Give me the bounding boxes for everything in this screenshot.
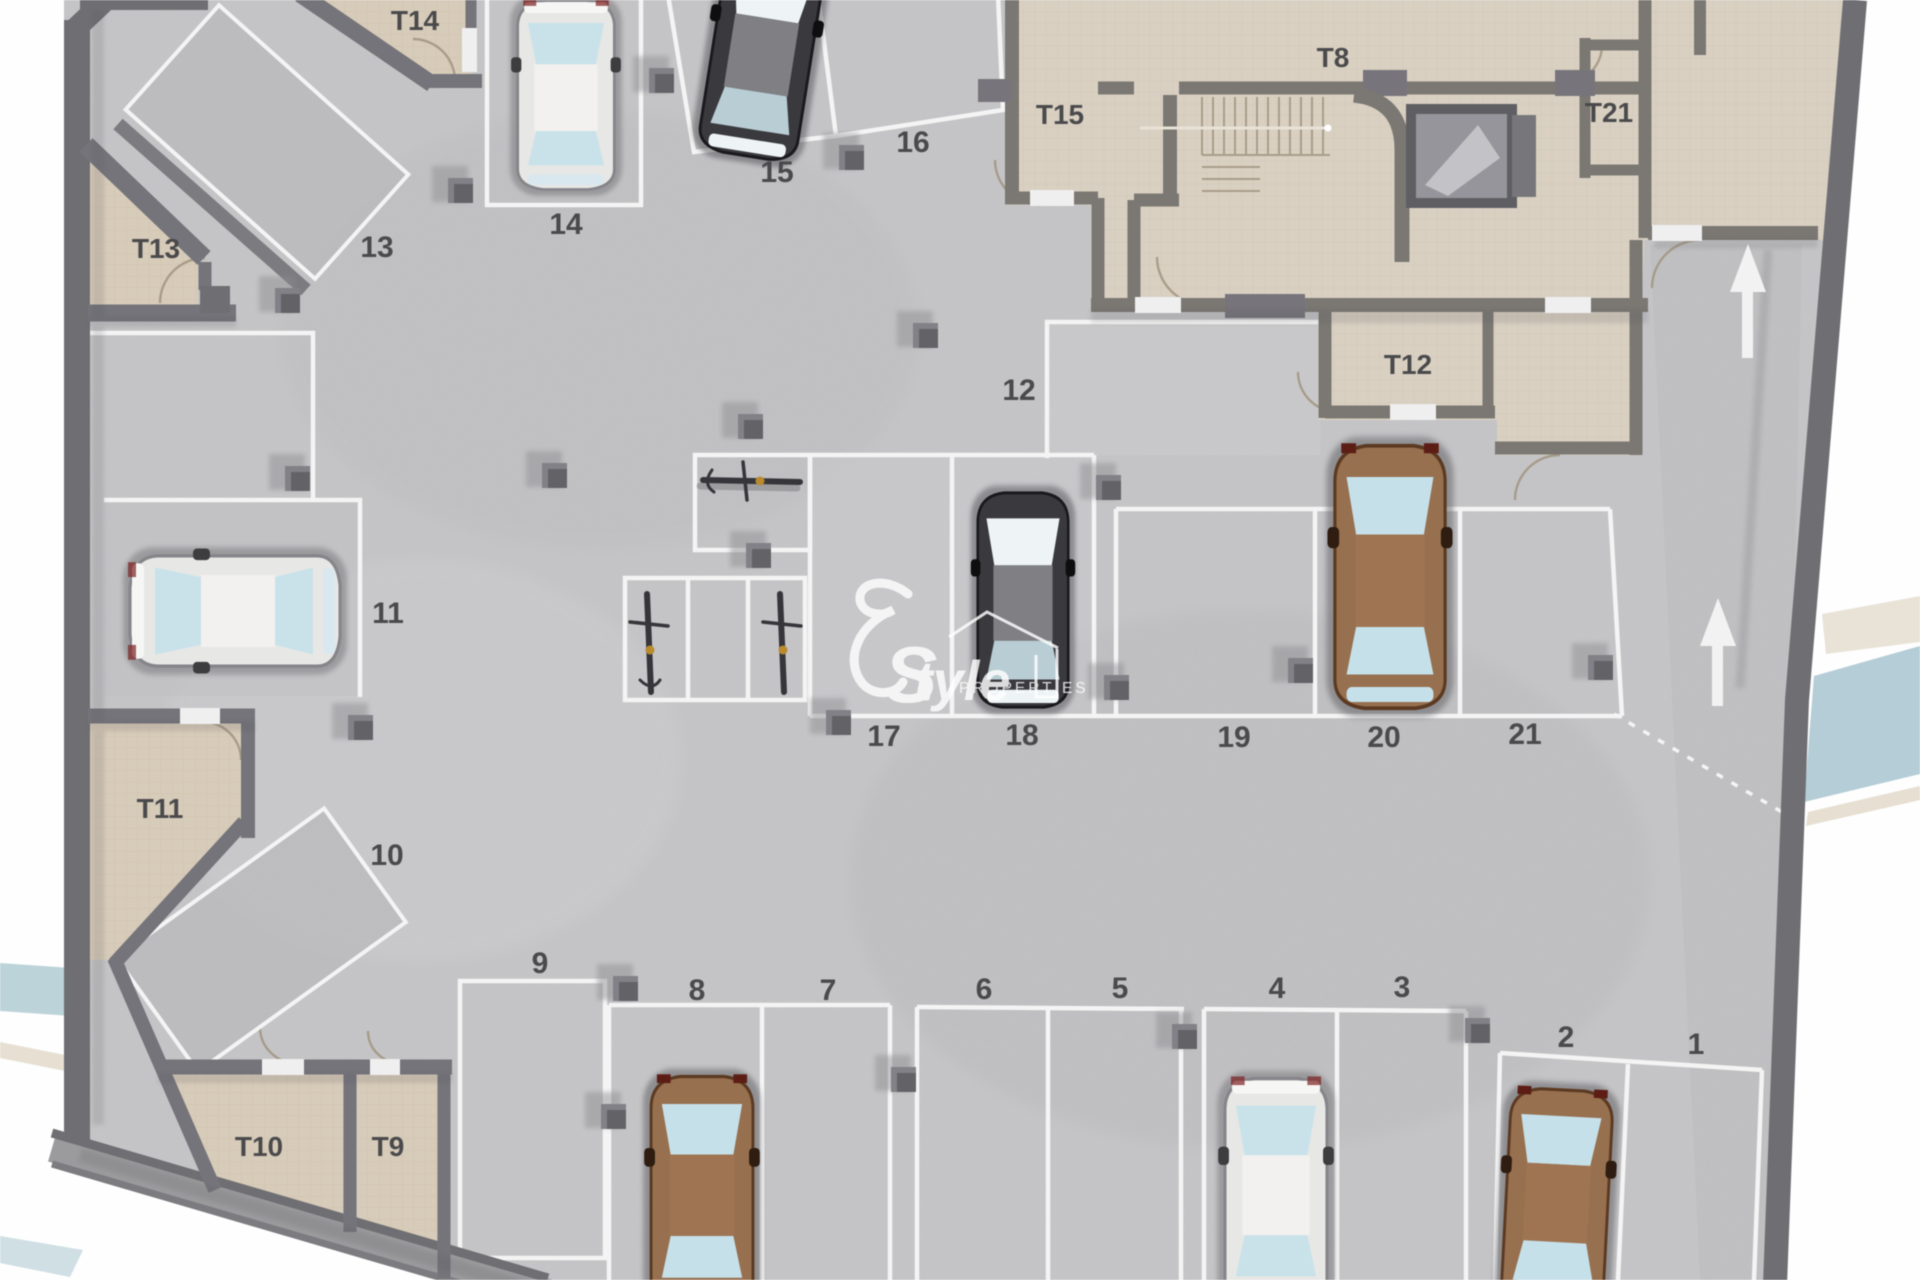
svg-text:T11: T11 (137, 793, 184, 824)
svg-text:11: 11 (372, 597, 404, 630)
svg-text:5: 5 (1112, 972, 1129, 1005)
svg-text:15: 15 (760, 156, 793, 189)
svg-text:T15: T15 (1036, 99, 1084, 130)
svg-text:7: 7 (820, 974, 837, 1007)
svg-text:T9: T9 (372, 1131, 405, 1162)
svg-text:21: 21 (1508, 718, 1541, 751)
svg-text:18: 18 (1005, 719, 1038, 752)
svg-text:T8: T8 (1317, 42, 1350, 73)
svg-text:T12: T12 (1384, 349, 1432, 380)
svg-text:17: 17 (867, 720, 900, 753)
svg-text:PROPERTIES: PROPERTIES (959, 680, 1089, 697)
svg-text:6: 6 (976, 973, 993, 1006)
svg-text:T10: T10 (235, 1131, 283, 1162)
svg-text:T13: T13 (132, 233, 180, 264)
svg-text:4: 4 (1269, 972, 1286, 1005)
svg-text:9: 9 (532, 947, 549, 980)
svg-text:8: 8 (689, 974, 706, 1007)
svg-text:19: 19 (1217, 721, 1250, 754)
svg-text:3: 3 (1394, 971, 1411, 1004)
svg-text:12: 12 (1002, 374, 1035, 407)
svg-text:1: 1 (1688, 1028, 1705, 1061)
svg-text:T14: T14 (391, 5, 440, 36)
svg-text:14: 14 (549, 208, 583, 241)
svg-text:2: 2 (1558, 1021, 1575, 1054)
svg-text:16: 16 (896, 126, 929, 159)
svg-text:20: 20 (1367, 721, 1400, 754)
svg-text:T21: T21 (1585, 97, 1633, 128)
svg-text:10: 10 (370, 839, 403, 872)
svg-text:13: 13 (360, 231, 393, 264)
